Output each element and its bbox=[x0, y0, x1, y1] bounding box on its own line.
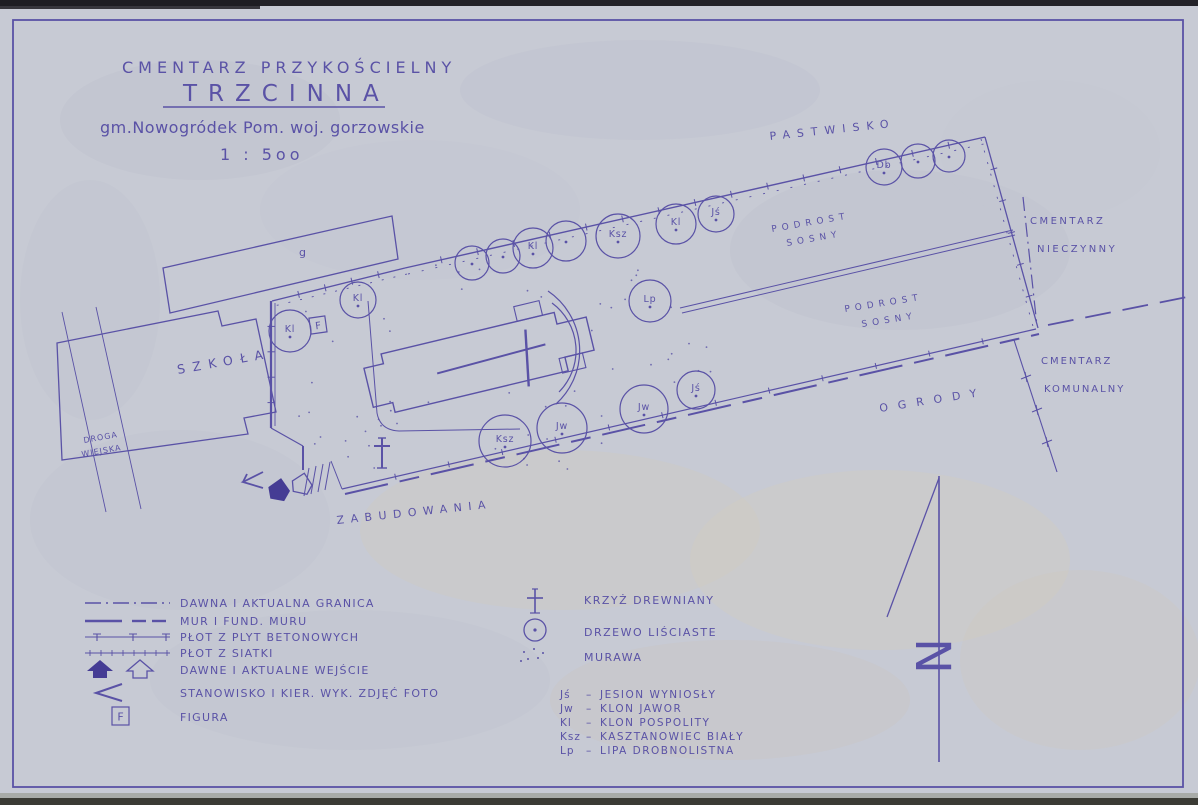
fence-tick bbox=[875, 363, 876, 369]
scanned-plan: CMENTARZ PRZYKOŚCIELNY TRZCINNA gm.Nowog… bbox=[0, 0, 1198, 805]
species-dash: – bbox=[586, 717, 591, 729]
map-label-nieczynny-1: CMENTARZ bbox=[1030, 216, 1105, 227]
map-label-komunalny-2: KOMUNALNY bbox=[1044, 384, 1125, 395]
church-axis-cross bbox=[436, 344, 546, 373]
species-dash: – bbox=[586, 703, 591, 715]
tree-label: Ksz bbox=[609, 229, 628, 240]
legend-photo-direction bbox=[96, 684, 122, 701]
tree-circle: Jw bbox=[537, 403, 587, 453]
legend-label: PŁOT Z SIATKI bbox=[180, 647, 274, 660]
current-entrance-icon bbox=[127, 660, 153, 678]
legend-label: KRZYŻ DREWNIANY bbox=[584, 594, 715, 607]
tree-label: Kl bbox=[671, 217, 681, 228]
tree-label: Kl bbox=[528, 241, 538, 252]
site-plan-svg: CMENTARZ PRZYKOŚCIELNY TRZCINNA gm.Nowog… bbox=[0, 0, 1198, 805]
figura-marker: F bbox=[309, 316, 327, 334]
species-dash: – bbox=[586, 689, 591, 701]
old-entrance-icon bbox=[87, 660, 113, 678]
plan-title-line2: TRZCINNA bbox=[182, 81, 390, 107]
species-name: LIPA DROBNOLISTNA bbox=[600, 745, 735, 757]
tree-label: Kl bbox=[285, 324, 295, 335]
species-dash: – bbox=[586, 745, 591, 757]
north-letter: N bbox=[904, 638, 960, 674]
boundary-dashes bbox=[1048, 297, 1187, 325]
fence-tick bbox=[662, 412, 663, 418]
fence-tick bbox=[395, 474, 396, 480]
legend-label: STANOWISKO I KIER. WYK. ZDJĘĆ FOTO bbox=[180, 687, 439, 700]
species-dash: – bbox=[586, 731, 591, 743]
species-name: KLON POSPOLITY bbox=[600, 717, 710, 729]
legend-label: DRZEWO LIŚCIASTE bbox=[584, 626, 717, 639]
legend-mesh-fence-line bbox=[85, 650, 170, 656]
tree-label: Jw bbox=[637, 402, 650, 413]
legend-tree-circle bbox=[524, 619, 546, 641]
svg-text:F: F bbox=[117, 711, 123, 724]
species-name: KASZTANOWIEC BIAŁY bbox=[600, 731, 744, 743]
tree-label: Db bbox=[877, 160, 892, 171]
fence-tick bbox=[929, 351, 930, 357]
fence-tick bbox=[822, 375, 823, 381]
plan-title-line3: gm.Nowogródek Pom. woj. gorzowskie bbox=[100, 118, 425, 137]
fence-tick bbox=[982, 338, 983, 344]
tree-circle: Kl bbox=[340, 282, 376, 318]
tree-label: Jś bbox=[690, 383, 700, 394]
legend-entrance-icons bbox=[87, 660, 153, 678]
tree-label: Jw bbox=[555, 421, 568, 432]
species-code: Kl bbox=[560, 717, 572, 729]
plan-scale: 1 : 5oo bbox=[220, 145, 304, 164]
svg-text:F: F bbox=[315, 321, 322, 333]
tree-label: Ksz bbox=[496, 434, 515, 445]
map-label-nieczynny-2: NIECZYNNY bbox=[1037, 244, 1117, 255]
legend-figure-box: F bbox=[112, 707, 129, 725]
tree-circle: Kl bbox=[656, 204, 696, 244]
map-label-pastwisko: PASTWISKO bbox=[769, 117, 896, 143]
tree-circle: Jś bbox=[677, 371, 715, 409]
legend-label: PŁOT Z PLYT BETONOWYCH bbox=[180, 631, 359, 644]
tree-label: Jś bbox=[710, 207, 720, 218]
map-label-ogrody: OGRODY bbox=[878, 385, 987, 415]
species-name: JESION WYNIOSŁY bbox=[599, 689, 716, 701]
fence-tick bbox=[608, 425, 609, 431]
fence-tick bbox=[768, 388, 769, 394]
legend-label: DAWNE I AKTUALNE WEJŚCIE bbox=[180, 664, 370, 677]
species-name: KLON JAWOR bbox=[600, 703, 682, 715]
legend-label: MUR I FUND. MURU bbox=[180, 615, 308, 628]
species-row: Ksz – KASZTANOWIEC BIAŁY bbox=[560, 731, 744, 743]
map-label-building-g: g bbox=[299, 246, 306, 259]
species-row: Lp – LIPA DROBNOLISTNA bbox=[560, 745, 735, 757]
legend-concrete-fence-line bbox=[85, 634, 170, 641]
legend-label: FIGURA bbox=[180, 711, 229, 724]
legend-label: MURAWA bbox=[584, 651, 642, 664]
map-label-komunalny-1: CMENTARZ bbox=[1041, 356, 1112, 367]
legend-label: DAWNA I AKTUALNA GRANICA bbox=[180, 597, 375, 610]
tree-label: Lp bbox=[644, 294, 657, 305]
tree-circle: Lp bbox=[629, 280, 671, 322]
tree-circle: Jś bbox=[698, 196, 734, 232]
tree-label: Kl bbox=[353, 293, 363, 304]
fence-tick bbox=[715, 400, 716, 406]
species-code: Ksz bbox=[560, 731, 581, 743]
plan-title-line1: CMENTARZ PRZYKOŚCIELNY bbox=[122, 58, 456, 77]
species-code: Jw bbox=[559, 703, 574, 715]
map-label-szkola: SZKOŁA bbox=[176, 346, 272, 377]
species-code: Lp bbox=[560, 745, 575, 757]
fence-tick bbox=[555, 437, 556, 443]
wooden-cross-marker bbox=[374, 438, 390, 468]
species-code: Jś bbox=[559, 689, 571, 701]
